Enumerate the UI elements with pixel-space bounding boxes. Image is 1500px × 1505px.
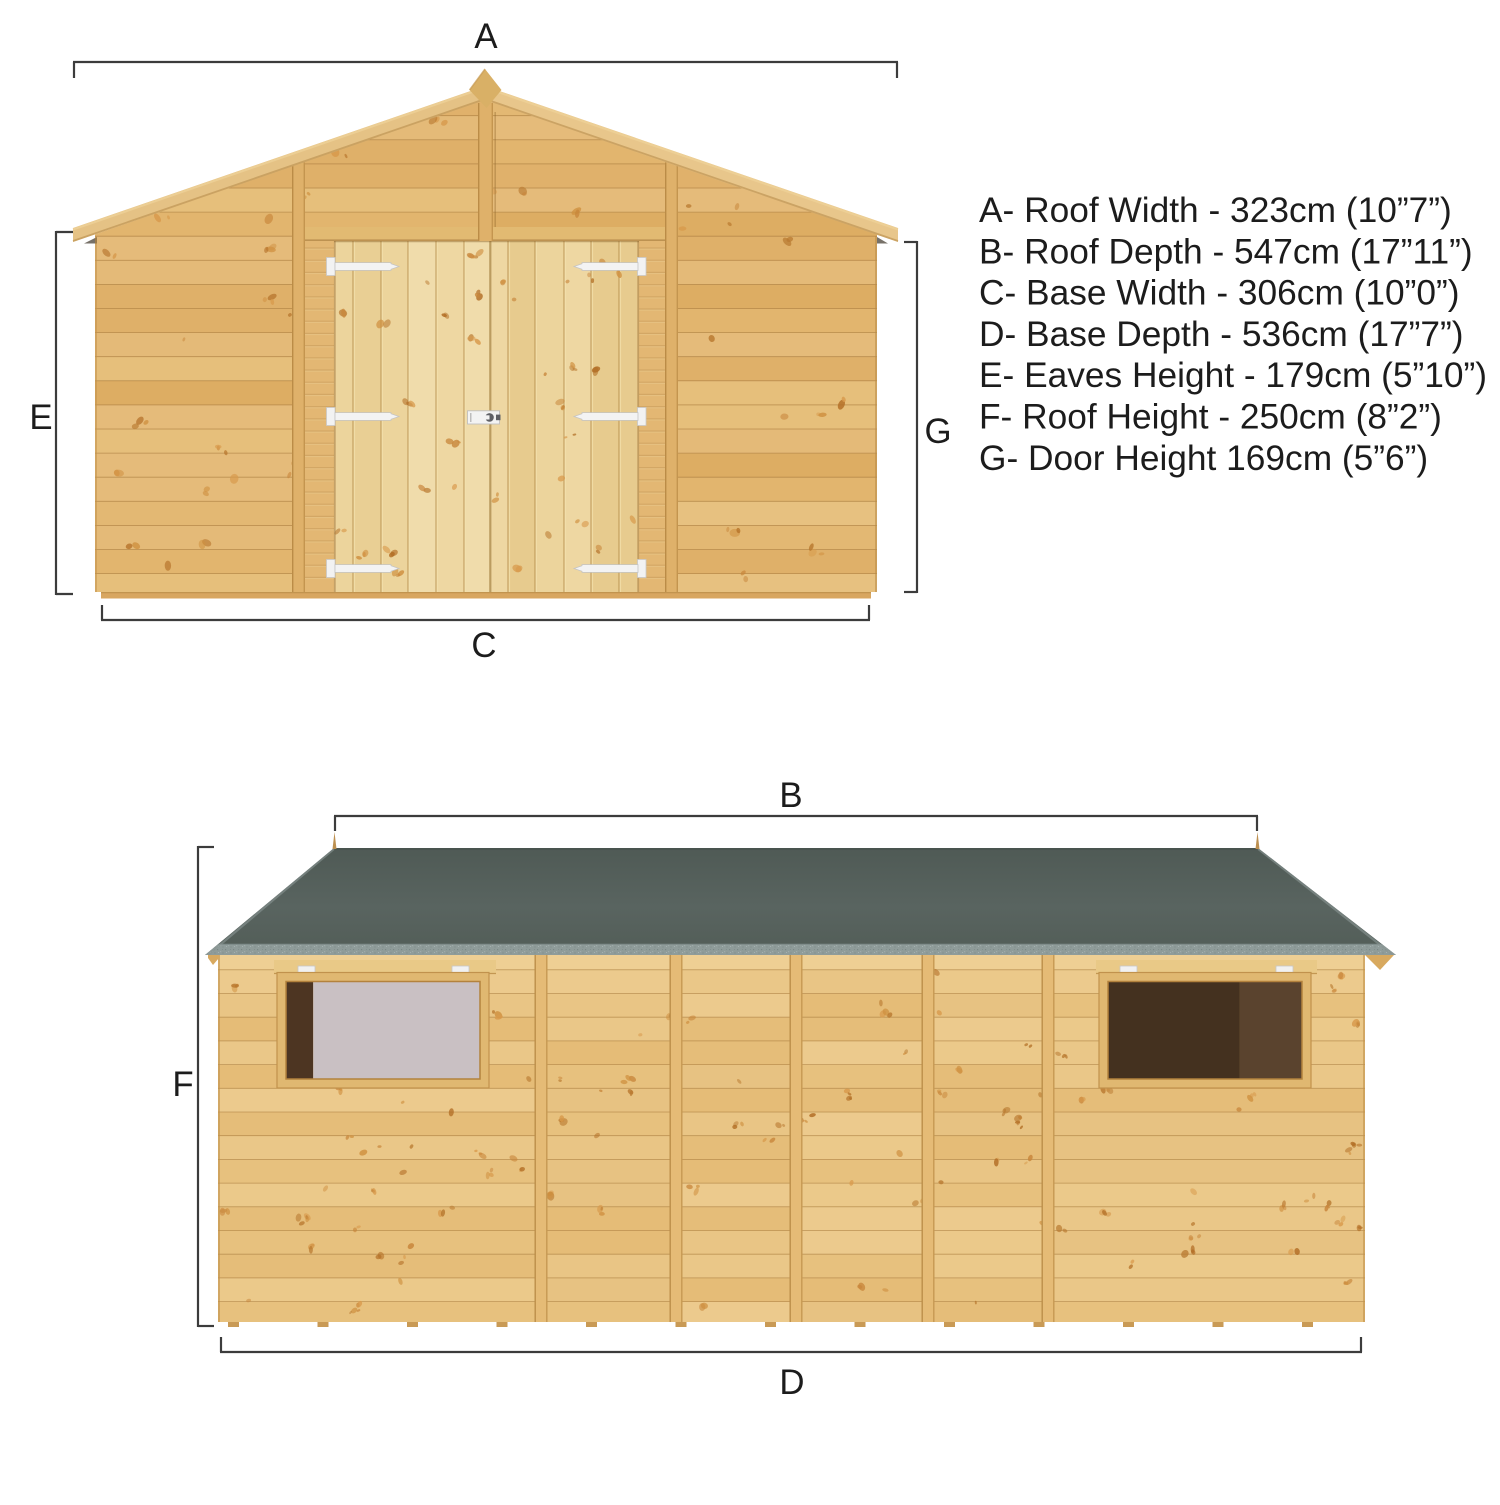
svg-text:F- Roof Height - 250cm (8”2”): F- Roof Height - 250cm (8”2”)	[979, 398, 1442, 437]
svg-text:C: C	[471, 626, 496, 665]
svg-text:B: B	[779, 776, 802, 815]
svg-text:F: F	[172, 1065, 193, 1104]
svg-text:E: E	[29, 398, 52, 437]
svg-text:C- Base Width - 306cm (10”0”): C- Base Width - 306cm (10”0”)	[979, 274, 1460, 313]
svg-text:D- Base Depth - 536cm (17”7”): D- Base Depth - 536cm (17”7”)	[979, 315, 1464, 354]
svg-text:A: A	[474, 17, 498, 56]
svg-text:G: G	[924, 412, 951, 451]
svg-text:A- Roof Width - 323cm (10”7”): A- Roof Width - 323cm (10”7”)	[979, 191, 1452, 230]
svg-text:D: D	[779, 1363, 804, 1402]
svg-text:G- Door Height 169cm (5”6”): G- Door Height 169cm (5”6”)	[979, 439, 1428, 478]
svg-text:B- Roof Depth - 547cm (17”11”): B- Roof Depth - 547cm (17”11”)	[979, 232, 1473, 271]
svg-text:E- Eaves Height - 179cm (5”10”: E- Eaves Height - 179cm (5”10”)	[979, 356, 1487, 395]
